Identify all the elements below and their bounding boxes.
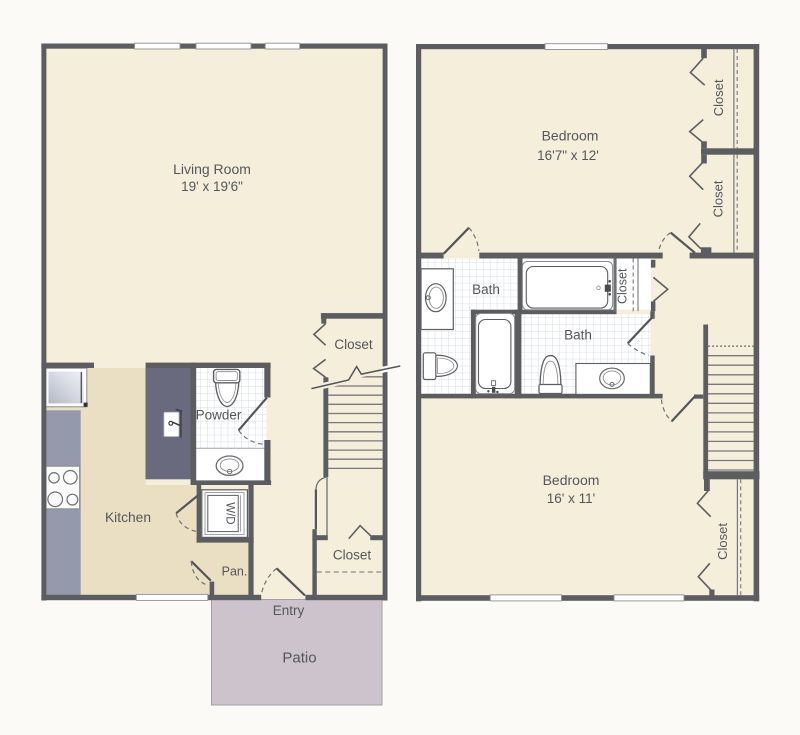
svg-text:Bath: Bath bbox=[472, 282, 500, 297]
svg-text:Closet: Closet bbox=[711, 180, 726, 217]
svg-text:Powder: Powder bbox=[196, 408, 242, 423]
svg-text:Closet: Closet bbox=[711, 79, 726, 116]
svg-text:Entry: Entry bbox=[273, 603, 305, 618]
svg-text:Pan.: Pan. bbox=[222, 565, 248, 579]
svg-text:Kitchen: Kitchen bbox=[105, 510, 151, 525]
svg-text:W/D: W/D bbox=[224, 502, 236, 524]
svg-text:Living Room: Living Room bbox=[173, 161, 251, 177]
svg-text:Bath: Bath bbox=[564, 328, 592, 343]
svg-text:Closet: Closet bbox=[334, 337, 373, 352]
svg-text:Patio: Patio bbox=[282, 650, 316, 667]
svg-text:16' x 11': 16' x 11' bbox=[547, 491, 595, 506]
svg-text:Bedroom: Bedroom bbox=[543, 472, 600, 488]
svg-text:Bedroom: Bedroom bbox=[542, 128, 599, 144]
svg-text:16'7" x 12': 16'7" x 12' bbox=[537, 148, 599, 163]
svg-text:Closet: Closet bbox=[715, 523, 730, 560]
svg-text:19' x 19'6": 19' x 19'6" bbox=[181, 179, 243, 194]
svg-text:Closet: Closet bbox=[616, 268, 630, 304]
svg-text:Closet: Closet bbox=[333, 548, 372, 563]
